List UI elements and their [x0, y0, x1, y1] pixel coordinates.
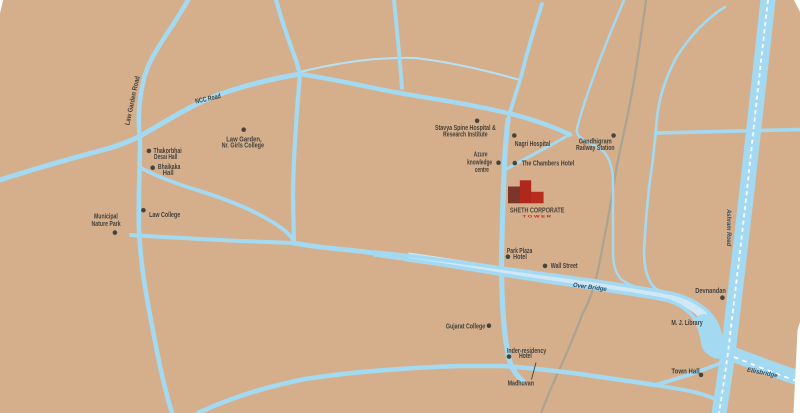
svg-text:Nagri Hospital: Nagri Hospital — [515, 141, 550, 148]
svg-text:Desai Hall: Desai Hall — [154, 154, 177, 161]
svg-text:Devnandan: Devnandan — [695, 288, 726, 295]
svg-text:Hall: Hall — [163, 170, 174, 177]
svg-text:Railway Station: Railway Station — [576, 145, 615, 152]
svg-text:Research Institute: Research Institute — [443, 132, 488, 139]
svg-text:Hotel: Hotel — [513, 254, 527, 261]
svg-text:The Chambers Hotel: The Chambers Hotel — [522, 160, 575, 167]
svg-text:Law College: Law College — [149, 212, 180, 219]
svg-text:Nature Park: Nature Park — [92, 221, 121, 228]
svg-text:T O W E R: T O W E R — [523, 214, 552, 219]
svg-text:Hotel: Hotel — [519, 353, 532, 360]
svg-text:centre: centre — [475, 167, 489, 174]
svg-text:Wall Street: Wall Street — [551, 263, 578, 270]
svg-text:Nr. Girls College: Nr. Girls College — [222, 143, 264, 150]
svg-text:M. J. Library: M. J. Library — [671, 320, 702, 327]
svg-text:Municipal: Municipal — [94, 214, 118, 221]
svg-text:Madhuvan: Madhuvan — [508, 381, 534, 388]
svg-text:Gujarat College: Gujarat College — [446, 324, 485, 331]
svg-text:Town Hall: Town Hall — [671, 368, 699, 375]
svg-text:Ashram Road: Ashram Road — [725, 208, 732, 247]
svg-text:Azure: Azure — [474, 152, 488, 159]
svg-text:knowledge: knowledge — [467, 160, 492, 167]
